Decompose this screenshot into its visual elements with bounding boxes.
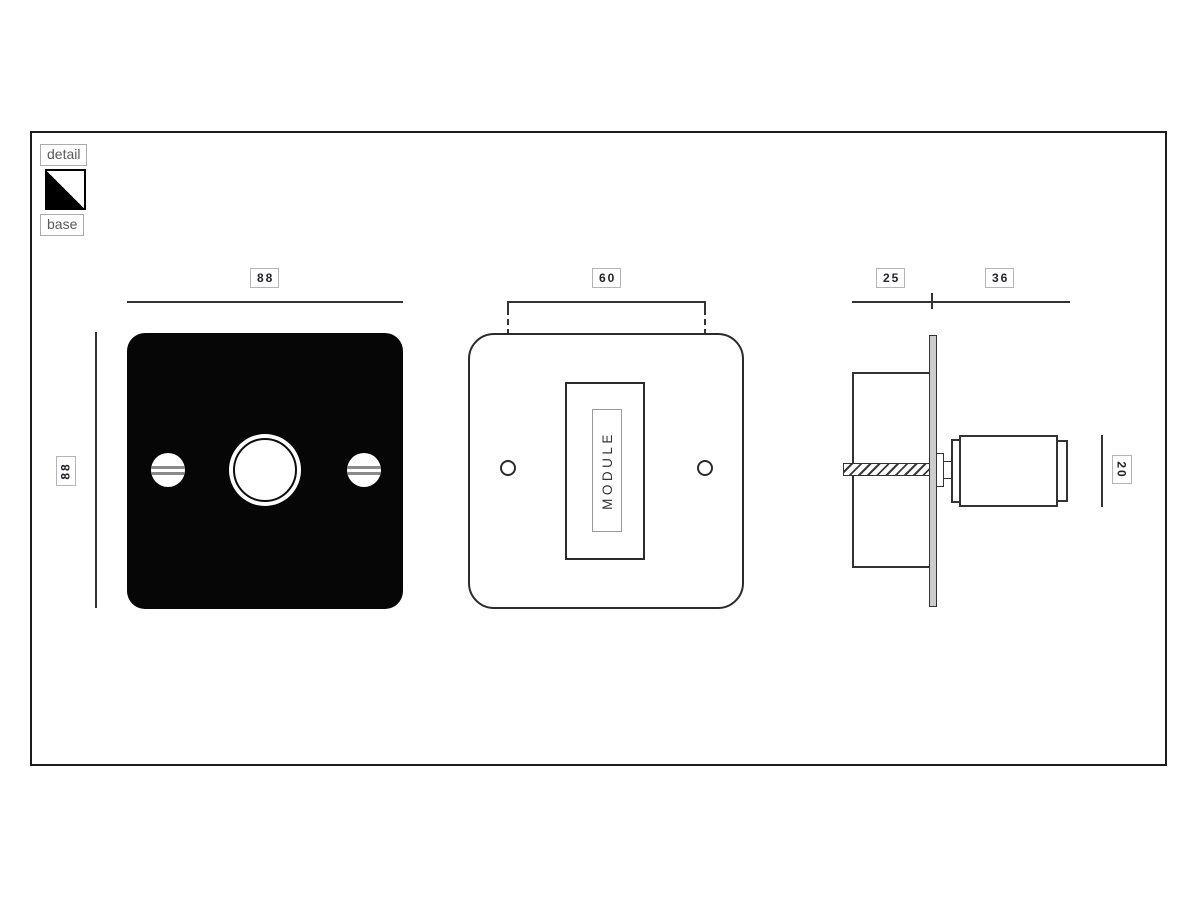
dim-label-knob-protrusion: 36 <box>985 268 1014 288</box>
knob-body-side <box>959 435 1058 507</box>
screw-hole-left <box>500 460 516 476</box>
dim-label-front-height: 88 <box>56 456 76 486</box>
detail-finish-label: detail <box>40 144 87 166</box>
dim-line-front-height <box>95 332 97 608</box>
dim-line-front-width <box>127 301 403 303</box>
dim-label-knob-diameter: 20 <box>1112 455 1132 484</box>
screw-icon-left <box>151 453 185 487</box>
base-finish-label: base <box>40 214 84 236</box>
dim-label-box-depth: 25 <box>876 268 905 288</box>
dimmer-knob-front <box>229 434 301 506</box>
screw-hole-right <box>697 460 713 476</box>
module-label: MODULE <box>600 431 615 510</box>
screw-icon-right <box>347 453 381 487</box>
threaded-rod-icon <box>843 463 931 476</box>
technical-drawing-sheet: detail base 88 88 60 MODULE 25 <box>0 0 1200 900</box>
dim-tick-left <box>507 301 509 309</box>
dimmer-knob-ring <box>233 438 297 502</box>
dim-tick-right <box>704 301 706 309</box>
dim-label-front-width: 88 <box>250 268 279 288</box>
dim-tick-mid <box>931 293 933 309</box>
dim-line-screw-spacing <box>507 301 706 303</box>
finish-swatch-icon <box>45 169 86 210</box>
dim-label-screw-spacing: 60 <box>592 268 621 288</box>
dim-line-knob-diameter <box>1101 435 1103 507</box>
module-label-frame: MODULE <box>592 409 622 532</box>
dim-line-side <box>852 301 1070 303</box>
knob-collar-side <box>936 453 944 487</box>
